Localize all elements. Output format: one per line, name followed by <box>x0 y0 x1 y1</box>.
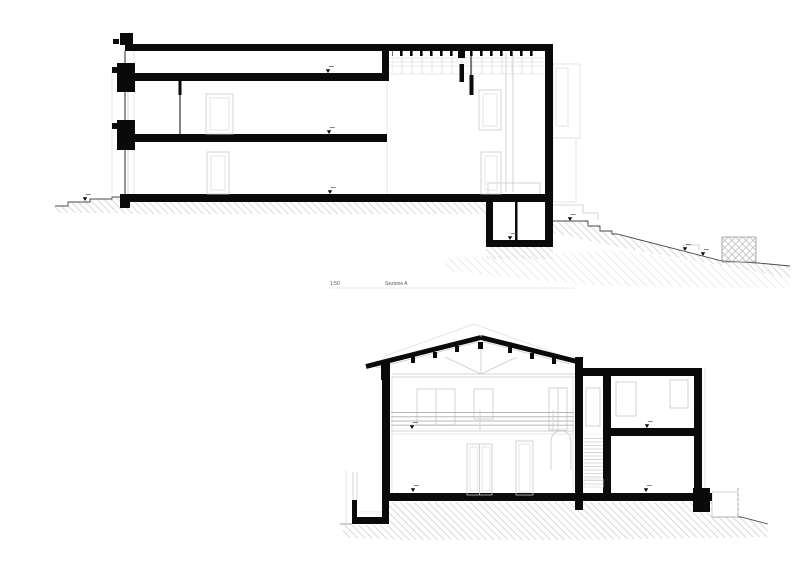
drawing-label: Sezione A <box>385 281 408 287</box>
upper-level-markers <box>83 66 709 256</box>
roof-truss <box>376 342 575 377</box>
roof-slope-right <box>481 338 577 362</box>
annex-wall-footing <box>693 488 710 512</box>
roof-parapet-tab <box>113 39 119 44</box>
door-hall-upper <box>479 90 501 130</box>
rafter-line-left <box>376 342 478 368</box>
roof-framing <box>390 51 543 82</box>
balcony-railing-lines <box>391 410 574 429</box>
level-marker <box>508 233 516 240</box>
upper-terrain <box>55 197 790 288</box>
ground-floor-slab <box>125 194 548 202</box>
lightwell-floor <box>352 517 389 524</box>
roof-row-ticks <box>392 58 540 74</box>
terrain-steps-outline <box>553 205 598 220</box>
purlin <box>411 357 415 363</box>
door-hall-lower <box>481 152 501 194</box>
terrace-parapet-tab <box>112 67 117 73</box>
background-volume-3 <box>556 68 568 126</box>
main-floor-slab <box>388 493 712 501</box>
roof-joist-ticks <box>392 51 540 56</box>
annex-right-wall <box>694 368 702 488</box>
upper-section-drawing <box>55 33 790 288</box>
background-volume-1 <box>553 64 580 138</box>
lower-openings <box>353 380 688 512</box>
french-door-2 <box>516 441 533 495</box>
purlin <box>530 353 534 359</box>
door-hall-lower-inner <box>485 156 497 190</box>
right-wall <box>545 44 553 247</box>
main-right-wall <box>575 361 583 510</box>
roof-parapet <box>120 33 133 45</box>
left-wall-footing <box>120 194 130 208</box>
purlin <box>455 346 459 352</box>
roof-slab <box>125 44 553 51</box>
annex-window-1 <box>616 382 636 416</box>
truss-strut-right <box>481 357 517 374</box>
annex-mid-slab <box>611 428 694 436</box>
level-marker <box>568 214 576 221</box>
level-marker <box>411 485 419 492</box>
stair-door-outline <box>586 388 600 426</box>
background-volume-2 <box>553 138 576 202</box>
rafter-line-right <box>484 342 570 364</box>
level-marker <box>645 421 653 428</box>
roof-beam-block <box>458 51 465 58</box>
french-door-1-panel-r <box>482 447 490 491</box>
terrace-parapet-block <box>117 63 135 92</box>
roof-hanger-bar <box>460 64 465 82</box>
truss-strut-left <box>445 357 481 374</box>
arched-niche <box>551 431 571 470</box>
door-upper-floor-inner <box>210 98 229 130</box>
annex-divider-wall <box>603 376 611 493</box>
mezzanine-edge-cap <box>470 75 474 95</box>
purlin <box>552 358 556 364</box>
french-door-1-panel-l <box>470 447 478 491</box>
balcony-parapet-block <box>117 120 135 150</box>
floor-slab-upper <box>125 134 387 142</box>
stair-treads <box>584 437 603 487</box>
level-marker <box>328 187 336 194</box>
basement-floor-slab <box>486 240 553 247</box>
door-ground-floor-inner <box>211 156 225 190</box>
level-marker <box>701 249 709 256</box>
purlin <box>433 352 437 358</box>
retaining-block-crosshatch <box>722 237 756 262</box>
level-marker <box>327 127 335 134</box>
earth-under-building <box>125 202 486 214</box>
ridge-purlin <box>478 342 483 349</box>
annex-window-2 <box>670 380 688 408</box>
annex-roof-slab <box>583 368 702 376</box>
balcony-parapet-tab <box>112 123 117 129</box>
scale-label: 1:50 <box>330 281 340 287</box>
basement-left-wall <box>486 200 493 247</box>
purlin <box>508 347 512 353</box>
interior-partition-cap <box>179 80 182 95</box>
drawing-sheet: 1:50 Sezione A <box>0 0 800 566</box>
lower-section-drawing <box>340 324 768 540</box>
left-parapet-stack <box>112 33 135 208</box>
section-drawings-svg: 1:50 Sezione A <box>0 0 800 566</box>
main-left-wall <box>382 371 390 495</box>
level-marker <box>326 66 334 73</box>
door-ground-floor <box>207 152 229 194</box>
basement-divider-wall <box>515 200 518 240</box>
terrace-slab <box>125 73 389 81</box>
title-block: 1:50 Sezione A <box>330 281 575 288</box>
door-hall-upper-inner <box>483 94 497 126</box>
level-marker <box>644 485 652 492</box>
french-door-2-panel <box>519 444 530 492</box>
exterior-step-outline <box>712 492 738 517</box>
